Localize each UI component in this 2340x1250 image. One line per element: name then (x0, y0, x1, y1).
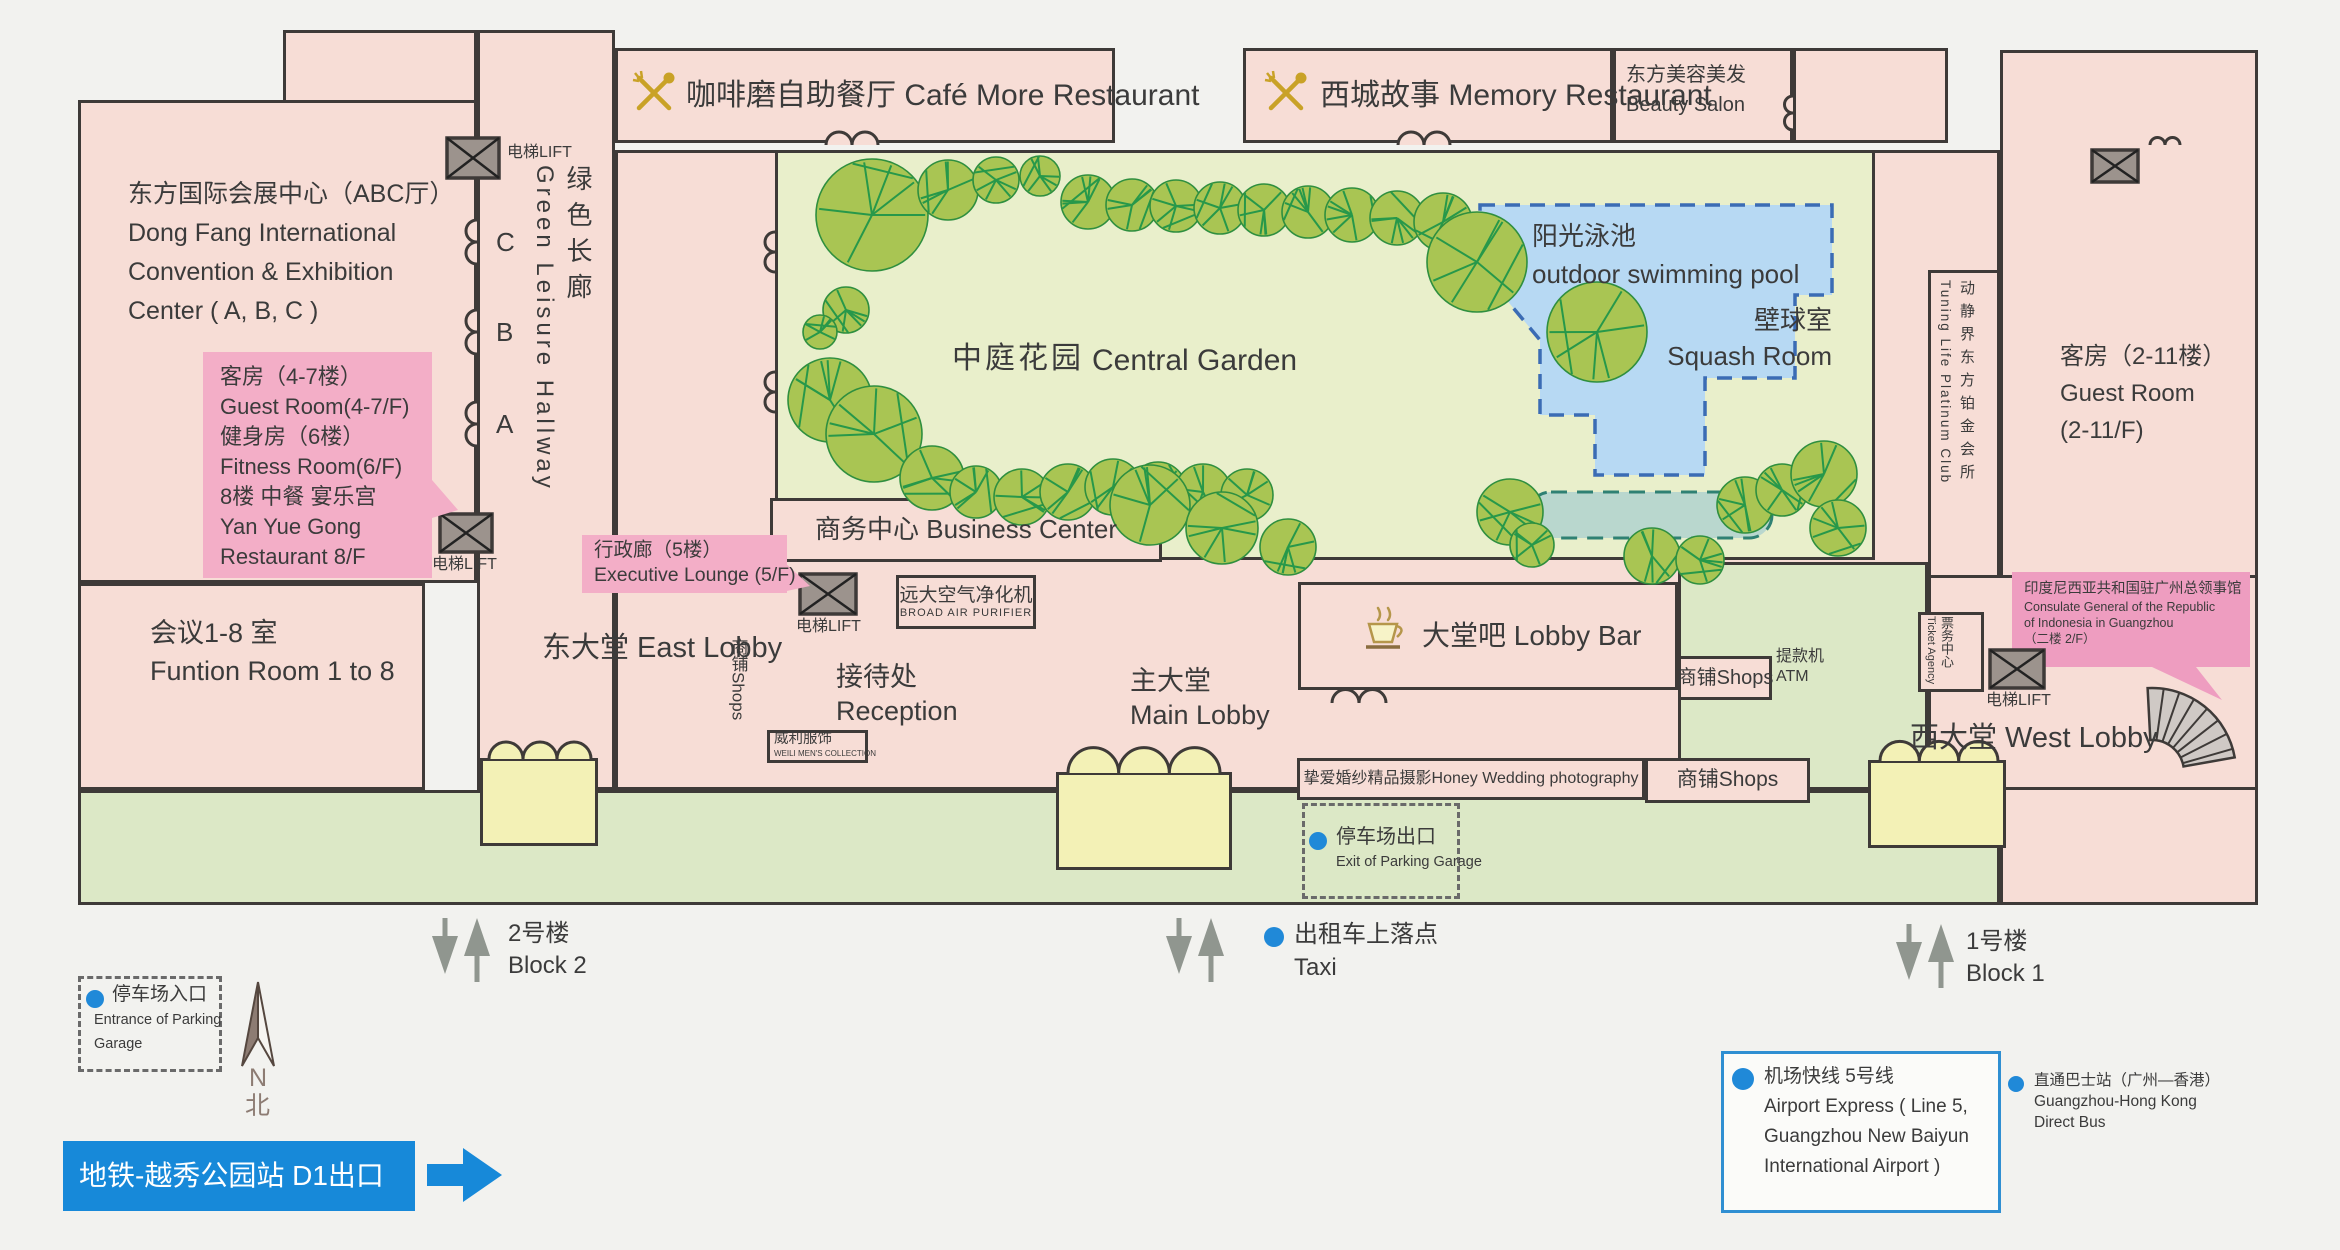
weili-label-cn: 威利服饰 (774, 731, 832, 748)
block1-label-en: Block 1 (1966, 960, 2045, 988)
crossed-utensils-icon (1262, 69, 1310, 122)
airport-express-label: 机场快线 5号线 Airport Express ( Line 5, Guang… (1764, 1062, 1969, 1182)
tree-icon (1791, 441, 1857, 507)
tree-icon (1427, 212, 1527, 312)
guest-room-callout-text: 客房（4-7楼） Guest Room(4-7/F) 健身房（6楼） Fitne… (220, 362, 410, 572)
direct-bus-label: 直通巴士站（广州—香港） Guangzhou-Hong Kong Direct … (2034, 1070, 2220, 1133)
tree-icon (1810, 500, 1866, 556)
tree-icon (816, 159, 928, 271)
beauty-salon-label-en: Beauty Salon (1626, 94, 1745, 117)
lobby-bar-label-row: 大堂吧 Lobby Bar (1356, 596, 1641, 676)
up-down-arrows-icon (432, 918, 490, 982)
function-room-label-cn: 会议1-8 室 (150, 618, 278, 649)
executive-lounge-line2: Executive Lounge (5/F) (594, 564, 796, 586)
function-room-label-en: Funtion Room 1 to 8 (150, 656, 395, 687)
up-down-arrows-icon (1896, 924, 1954, 988)
tree-icon (918, 160, 978, 220)
west-lobby-label: 西大堂 West Lobby (1910, 722, 2158, 755)
squash-label-cn: 壁球室 (1692, 306, 1832, 336)
lobby-bar-label: 大堂吧 Lobby Bar (1422, 620, 1641, 652)
taxi-label-en: Taxi (1294, 954, 1337, 982)
elevator-icon (1990, 650, 2044, 688)
shops-vertical-label: 商铺Shops (728, 638, 748, 764)
tree-icon (1510, 523, 1554, 567)
lift-label-2: 电梯LIFT (432, 556, 497, 574)
door-arc-icon (466, 310, 477, 354)
parking-exit-label-en: Exit of Parking Garage (1336, 854, 1482, 871)
door-arc-icon (765, 232, 775, 272)
up-down-arrows-icon (1166, 918, 1224, 982)
cafe-more-label: 咖啡磨自助餐厅 Café More Restaurant (686, 79, 1199, 114)
parking-exit-dot (1309, 832, 1327, 850)
north-arrow-icon (258, 982, 274, 1066)
door-arc-icon (2150, 138, 2180, 146)
convention-center-label: 东方国际会展中心（ABC厅） Dong Fang International C… (128, 175, 454, 331)
cafe-more-label-row: 咖啡磨自助餐厅 Café More Restaurant (630, 60, 1199, 132)
lift-label-3: 电梯LIFT (796, 618, 861, 636)
consulate-label: 印度尼西亚共和国驻广州总领事馆 Consulate General of the… (2024, 580, 2242, 647)
atm-label-cn: 提款机 (1776, 648, 1824, 666)
door-arc-icon (826, 132, 878, 145)
business-center-label: 商务中心 Business Center (770, 498, 1162, 562)
hall-door-label-a: A (496, 410, 513, 440)
garden-title-en: Central Garden (1092, 344, 1297, 379)
tree-icon (1020, 156, 1060, 196)
lift-label-1: 电梯LIFT (507, 144, 572, 162)
metro-banner: 地铁-越秀公园站 D1出口 (63, 1141, 415, 1211)
north-letter: N (249, 1064, 267, 1093)
elevator-icon (800, 574, 856, 614)
parking-exit-label-cn: 停车场出口 (1336, 826, 1436, 849)
parking-entrance-label-cn: 停车场入口 (112, 984, 207, 1006)
squash-label-en: Squash Room (1622, 342, 1832, 372)
lift-label-4: 电梯LIFT (1986, 692, 2051, 710)
air-purifier-label: 远大空气净化机 BROAD AIR PURIFIER (896, 575, 1036, 629)
tuning-club-label: 动静界东方铂金会所 Tuning Life Platinum Club (1936, 280, 1977, 658)
parking-entrance-label-en2: Garage (94, 1036, 142, 1053)
tree-icon (973, 157, 1019, 203)
parking-entrance-dot (86, 990, 104, 1008)
tree-icon (1260, 519, 1316, 575)
door-arc-icon (1332, 690, 1386, 704)
guest-tower-label: 客房（2-11楼） Guest Room (2-11/F) (2060, 338, 2226, 449)
elevator-icon (447, 138, 499, 178)
pool-label-en: outdoor swimming pool (1532, 260, 1799, 290)
block2-label-en: Block 2 (508, 952, 587, 980)
hall-door-label-c: C (496, 228, 515, 258)
beauty-salon-label-cn: 东方美容美发 (1626, 64, 1746, 87)
executive-lounge-line1: 行政廊（5楼） (594, 539, 722, 561)
north-arrow-icon (242, 982, 258, 1066)
taxi-dot (1264, 927, 1284, 947)
door-arc-icon (1398, 132, 1450, 145)
tree-icon (1186, 492, 1258, 564)
tree-icon (1676, 536, 1724, 584)
tree-icon (803, 315, 837, 349)
north-cn: 北 (245, 1092, 270, 1121)
coffee-cup-icon (1356, 606, 1412, 665)
elevator-icon (440, 514, 492, 552)
canopy-arcs-icon (489, 742, 591, 759)
pool-label-cn: 阳光泳池 (1532, 222, 1636, 252)
main-lobby-label-en: Main Lobby (1130, 700, 1270, 731)
airport-express-dot (1732, 1068, 1754, 1090)
crossed-utensils-icon (630, 69, 678, 122)
parking-entrance-label-en1: Entrance of Parking (94, 1012, 221, 1029)
shops-right-label: 商铺Shops (1645, 758, 1810, 803)
door-arc-icon (466, 402, 477, 446)
block2-label-cn: 2号楼 (508, 920, 569, 948)
block1-label-cn: 1号楼 (1966, 928, 2027, 956)
metro-direction-arrow-icon (427, 1148, 502, 1202)
shops-mid-label: 商铺Shops (1678, 656, 1772, 700)
hall-door-label-b: B (496, 318, 513, 348)
reception-label-en: Reception (836, 696, 958, 727)
honey-wedding-label: 挚爱婚纱精品摄影Honey Wedding photography (1297, 758, 1645, 800)
garden-title-cn: 中庭花园 (952, 342, 1084, 377)
elevator-icon (2092, 150, 2138, 182)
reception-label-cn: 接待处 (836, 662, 917, 693)
tree-icon (1624, 528, 1680, 584)
green-hallway-label: 绿色长廊 Green Leisure Hallway (528, 165, 596, 615)
taxi-label-cn: 出租车上落点 (1294, 921, 1438, 949)
weili-label-en: WEILI MEN'S COLLECTION (774, 749, 876, 758)
door-arc-icon (466, 220, 477, 264)
canopy-arcs-icon (1068, 748, 1220, 773)
hotel-site-map: 咖啡磨自助餐厅 Café More Restaurant 西城故事 Memory… (0, 0, 2340, 1250)
door-arc-icon (1785, 96, 1794, 130)
metro-banner-label: 地铁-越秀公园站 D1出口 (63, 1141, 415, 1211)
door-arc-icon (765, 372, 775, 412)
atm-label-en: ATM (1776, 668, 1809, 686)
direct-bus-dot (2008, 1076, 2024, 1092)
main-lobby-label-cn: 主大堂 (1130, 666, 1211, 697)
